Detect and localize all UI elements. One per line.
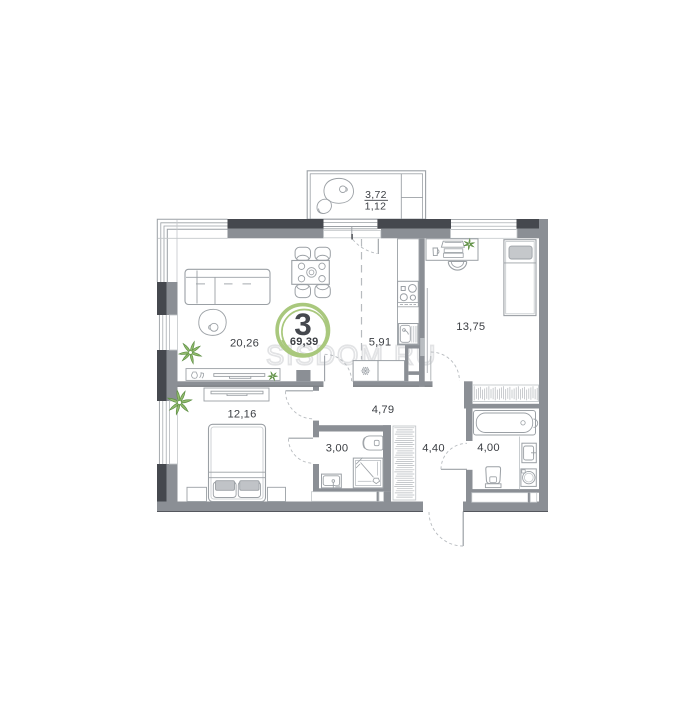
svg-text:20,26: 20,26 <box>230 337 259 349</box>
svg-text:3,72: 3,72 <box>365 189 387 201</box>
svg-text:69,39: 69,39 <box>290 336 319 348</box>
svg-text:4,00: 4,00 <box>477 442 500 454</box>
svg-text:1,12: 1,12 <box>365 201 387 213</box>
svg-text:3,00: 3,00 <box>326 442 349 454</box>
svg-text:4,40: 4,40 <box>422 442 445 454</box>
svg-text:12,16: 12,16 <box>228 409 257 421</box>
svg-text:4,79: 4,79 <box>372 404 395 416</box>
svg-text:13,75: 13,75 <box>456 321 485 333</box>
svg-text:5,91: 5,91 <box>369 336 392 348</box>
